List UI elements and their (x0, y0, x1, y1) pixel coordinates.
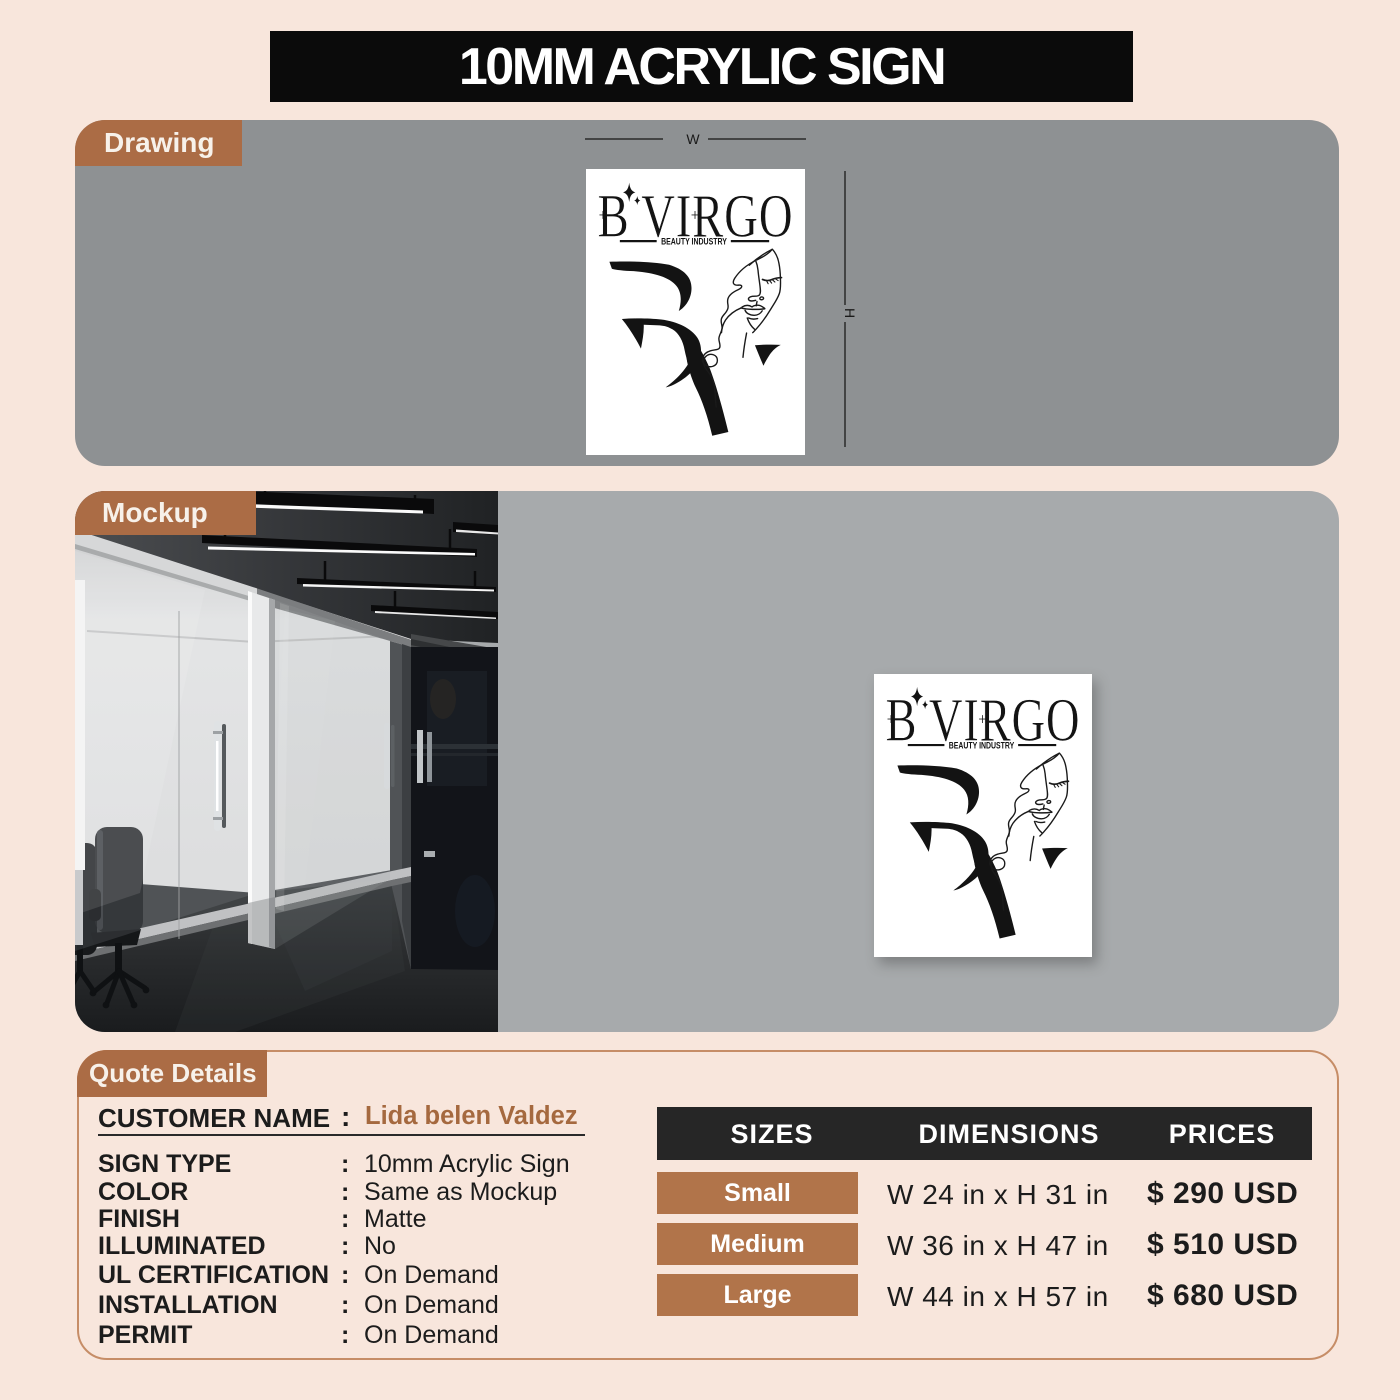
svg-text:W: W (686, 131, 700, 147)
svg-text:H: H (842, 308, 858, 318)
